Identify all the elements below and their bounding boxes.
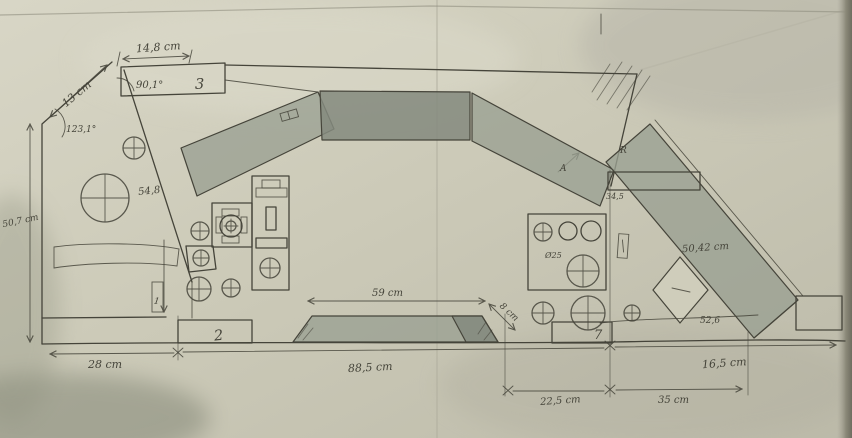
knob-below-1	[532, 302, 554, 324]
label-dim-bottom-center: 88,5 cm	[348, 360, 393, 375]
label-part-2: 2	[212, 328, 224, 345]
bracket-knob	[193, 250, 209, 266]
label-marker-r: R	[619, 146, 627, 156]
label-part-7: 7	[594, 328, 603, 343]
scanned-sketch-page: 14,8 cm 13 cm 90,1° 3 123,1° 50,7 cm 54,…	[0, 0, 852, 438]
paper-right-edge	[837, 0, 852, 438]
label-marker-a: A	[559, 164, 567, 174]
gauge-large	[567, 255, 599, 287]
knob-below-2	[571, 296, 605, 330]
label-part-3: 3	[195, 77, 204, 93]
lower-knob-1	[187, 277, 211, 301]
knob-below-3	[624, 305, 640, 321]
left-gauge-small	[123, 137, 145, 159]
lower-knob-2	[222, 279, 240, 297]
label-knob-diameter: Ø25	[544, 251, 562, 260]
band-middle-segment	[320, 91, 470, 140]
sketch-canvas: 14,8 cm 13 cm 90,1° 3 123,1° 50,7 cm 54,…	[0, 0, 852, 438]
left-gauge-large	[81, 174, 129, 222]
label-dim-lower-right: 35 cm	[658, 395, 689, 406]
label-dim-center-width: 59 cm	[372, 288, 403, 299]
label-angle-top: 90,1°	[136, 80, 163, 91]
label-value-right-ledge: 34,5	[606, 192, 624, 201]
gauge-small-1	[534, 223, 552, 241]
label-value-right-bottom: 52,6	[700, 316, 720, 326]
label-angle-left: 123,1°	[66, 125, 96, 135]
console-knob	[260, 258, 280, 278]
label-value-left-panel: 54,8	[138, 185, 161, 198]
label-dim-bottom-left: 28 cm	[87, 358, 122, 371]
knob-left-of-panel	[191, 222, 209, 240]
